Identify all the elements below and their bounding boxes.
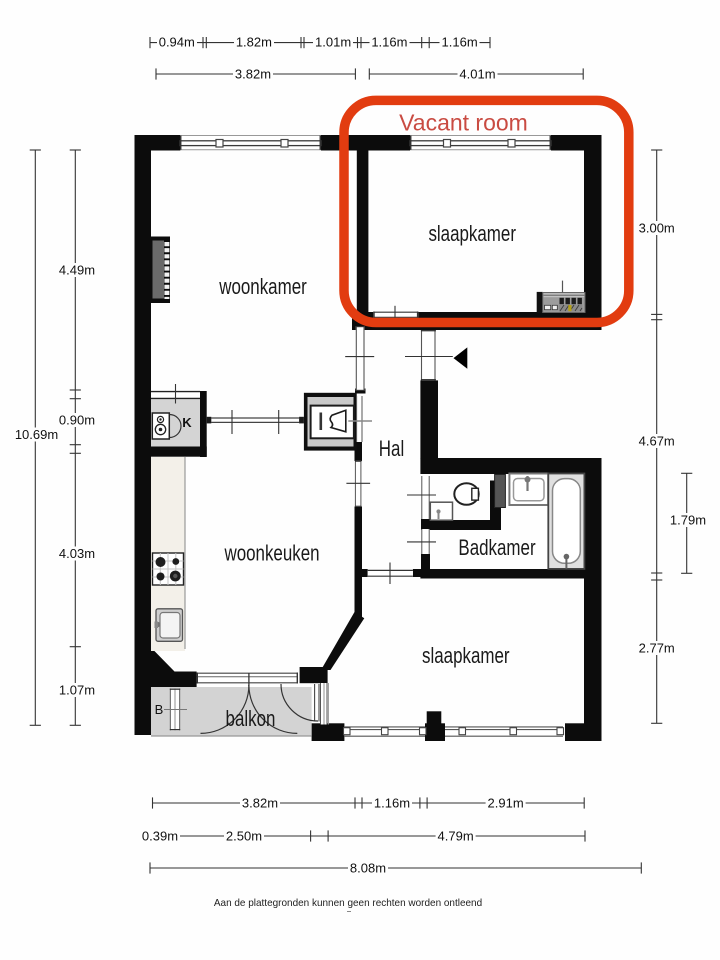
svg-text:1.16m: 1.16m [371, 35, 407, 50]
svg-text:0.94m: 0.94m [159, 35, 195, 50]
svg-text:woonkeuken: woonkeuken [224, 542, 320, 567]
svg-text:slaapkamer: slaapkamer [422, 644, 510, 669]
svg-text:3.82m: 3.82m [235, 67, 271, 82]
svg-text:1.01m: 1.01m [315, 35, 351, 50]
svg-text:4.79m: 4.79m [438, 829, 474, 844]
svg-text:3.82m: 3.82m [242, 796, 278, 811]
svg-text:4.03m: 4.03m [59, 546, 95, 561]
svg-text:Vacant room: Vacant room [399, 110, 528, 136]
svg-text:3.00m: 3.00m [639, 221, 675, 236]
svg-text:2.77m: 2.77m [639, 641, 675, 656]
svg-text:4.67m: 4.67m [639, 434, 675, 449]
svg-text:B: B [155, 702, 164, 717]
svg-text:8.08m: 8.08m [350, 861, 386, 876]
svg-text:1.16m: 1.16m [442, 35, 478, 50]
svg-text:K: K [182, 415, 192, 430]
svg-text:10.69m: 10.69m [15, 427, 58, 442]
svg-text:2.50m: 2.50m [226, 829, 262, 844]
svg-text:1.82m: 1.82m [236, 35, 272, 50]
svg-text:1.79m: 1.79m [670, 513, 706, 528]
svg-text:0.39m: 0.39m [142, 829, 178, 844]
svg-text:4.49m: 4.49m [59, 263, 95, 278]
svg-text:Hal: Hal [379, 437, 404, 462]
svg-text:Badkamer: Badkamer [458, 536, 536, 561]
svg-text:2.91m: 2.91m [488, 796, 524, 811]
svg-text:woonkamer: woonkamer [218, 275, 307, 300]
svg-text:0.90m: 0.90m [59, 413, 95, 428]
svg-text:balkon: balkon [226, 707, 276, 732]
svg-text:1.16m: 1.16m [374, 796, 410, 811]
svg-text:Aan de plattegronden kunnen ge: Aan de plattegronden kunnen geen rechten… [214, 898, 483, 909]
svg-text:1.07m: 1.07m [59, 683, 95, 698]
svg-text:4.01m: 4.01m [459, 67, 495, 82]
svg-text:slaapkamer: slaapkamer [428, 222, 516, 247]
